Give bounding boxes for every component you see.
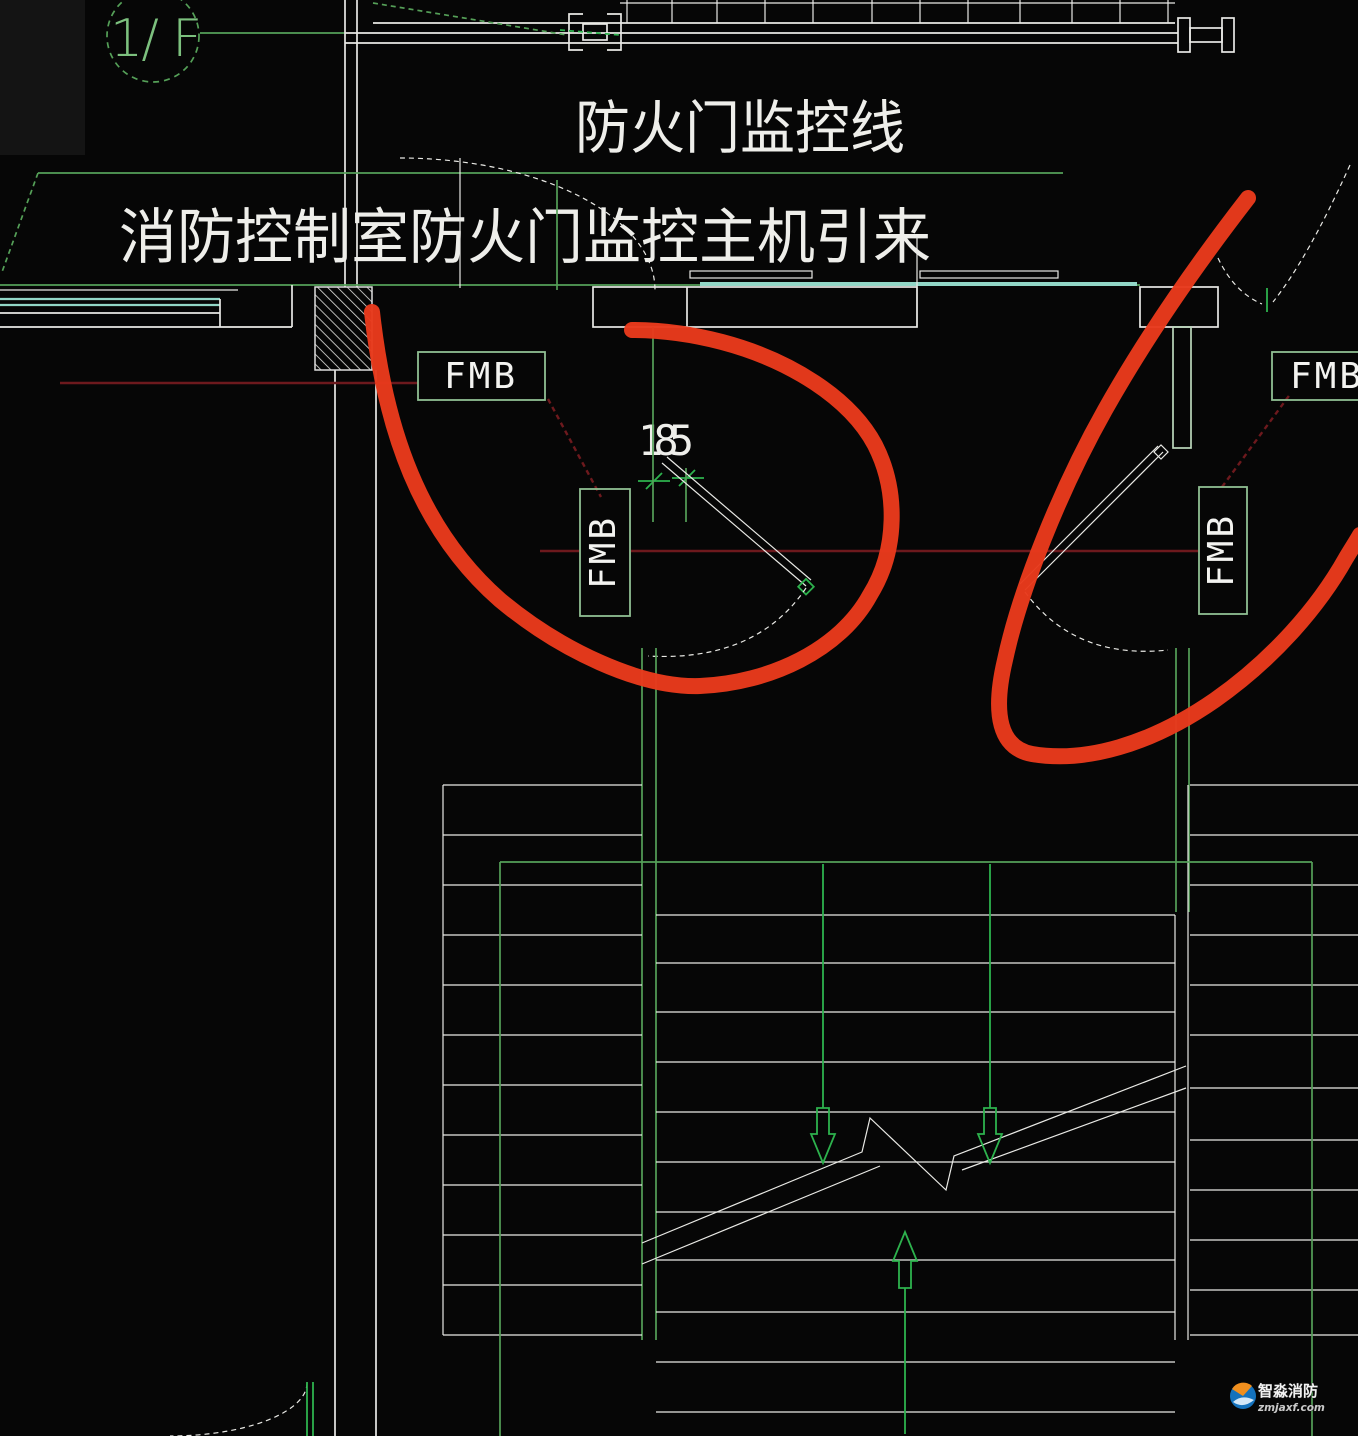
watermark-site: zmjaxf.com — [1257, 1402, 1325, 1414]
photo-glare — [0, 0, 85, 155]
note-main-text: 消防控制室防火门监控主机引来 — [119, 203, 931, 273]
fmb-text: FMB — [1290, 356, 1358, 397]
fmb-text: FMB — [444, 356, 518, 397]
watermark-brand: 智淼消防 — [1258, 1382, 1318, 1400]
fmb-text: FMB — [583, 515, 624, 589]
fmb-text: FMB — [1201, 513, 1242, 587]
dimension-value: 185 — [638, 416, 694, 465]
cad-fireplan-canvas: 1/ F 防火门监控线 消防控制室防火门监控主机引来 — [0, 0, 1358, 1436]
floor-tag-label: 1/ F — [110, 9, 202, 69]
hatched-column — [315, 287, 372, 370]
note-top-text: 防火门监控线 — [575, 94, 905, 162]
